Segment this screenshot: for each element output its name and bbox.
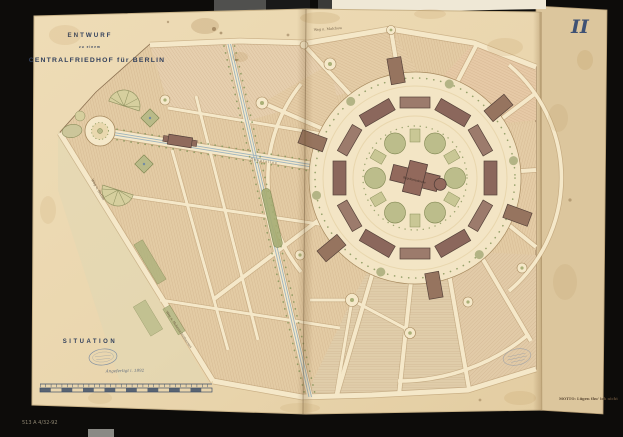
situation-label: SITUATION	[63, 339, 117, 345]
paper-clip	[318, 0, 332, 9]
title-line2: zu einem	[79, 45, 101, 49]
bottom-tab	[88, 429, 114, 437]
photographed-plan: Begräbnisskirche Weg n	[0, 0, 623, 437]
fold-seam	[297, 9, 313, 414]
motto-label: MOTTO: Lügen thu' ich nicht	[559, 397, 618, 401]
plate-number: II	[570, 16, 590, 38]
catalog-mark: 513 A 4/32-92	[22, 420, 58, 426]
underlying-page	[536, 6, 607, 414]
date-note: Angefertigt i. 1892	[105, 368, 145, 374]
title-line3: CENTRALFRIEDHOF für BERLIN	[29, 57, 166, 64]
